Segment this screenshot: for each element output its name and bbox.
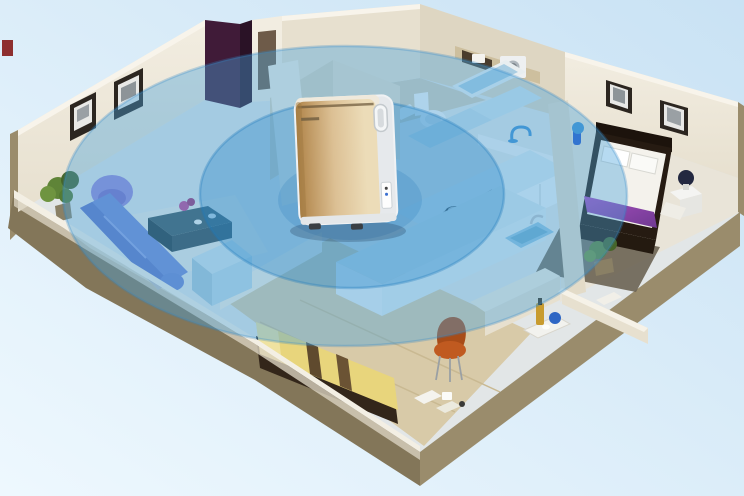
handle-cutout bbox=[374, 104, 388, 132]
small-box bbox=[442, 392, 452, 400]
table-lamp-icon bbox=[678, 170, 694, 186]
lamp-stand bbox=[683, 184, 689, 190]
handle-slot bbox=[377, 108, 384, 127]
chair-seat bbox=[434, 341, 466, 359]
kettle bbox=[549, 312, 561, 324]
scene-canvas bbox=[0, 0, 744, 496]
purifier-foot bbox=[309, 223, 321, 230]
small-object bbox=[459, 401, 465, 407]
purifier-foot bbox=[351, 223, 363, 230]
small-red-frame bbox=[2, 40, 13, 56]
control-display bbox=[381, 182, 392, 208]
cup bbox=[542, 325, 550, 330]
apartment-coverage-illustration bbox=[0, 0, 744, 496]
air-purifier bbox=[293, 94, 399, 232]
foliage bbox=[40, 186, 56, 202]
purifier-front-panel bbox=[295, 99, 380, 222]
right-slab-edge bbox=[738, 102, 744, 216]
